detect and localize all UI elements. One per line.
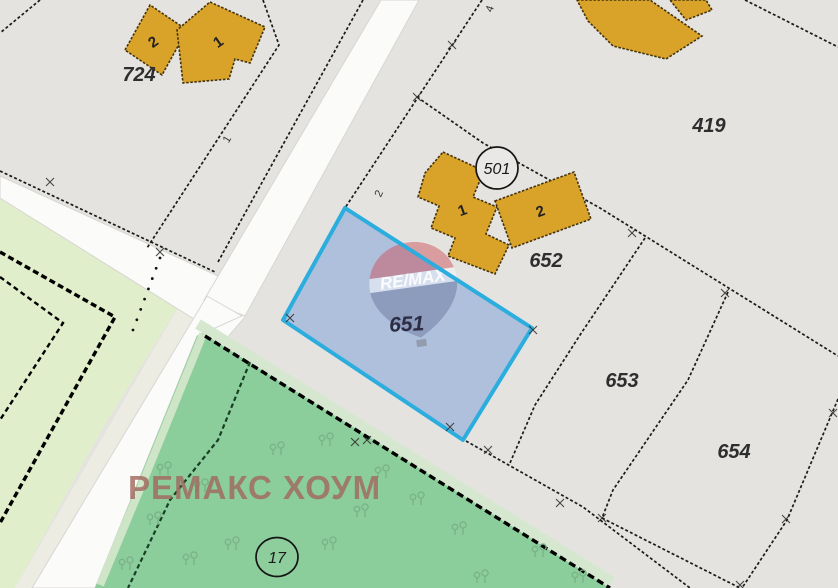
survey-dot [143,298,146,301]
balloon-basket [416,339,427,347]
map-viewport[interactable]: 2112RE/MAX65150117724419652653654421 РЕМ… [0,0,838,588]
survey-dot [155,267,158,270]
survey-dot [139,308,142,311]
parcel-label-419: 419 [691,115,726,137]
selected-parcel-label: 651 [389,312,425,337]
survey-dot [132,329,135,332]
parcel-label-652: 652 [529,250,562,272]
parcel-label-654: 654 [717,441,750,463]
survey-dot [147,287,150,290]
parcel-label-724: 724 [122,64,155,86]
survey-dot [159,257,162,260]
survey-dot [151,277,154,280]
point-501: 501 [476,147,518,189]
point-17: 17 [256,538,298,577]
parcel-label-653: 653 [605,370,638,392]
survey-dot [135,318,138,321]
point-501-label: 501 [484,161,511,178]
cadastral-map: 2112RE/MAX65150117724419652653654421 [0,0,838,588]
point-17-label: 17 [268,550,287,567]
